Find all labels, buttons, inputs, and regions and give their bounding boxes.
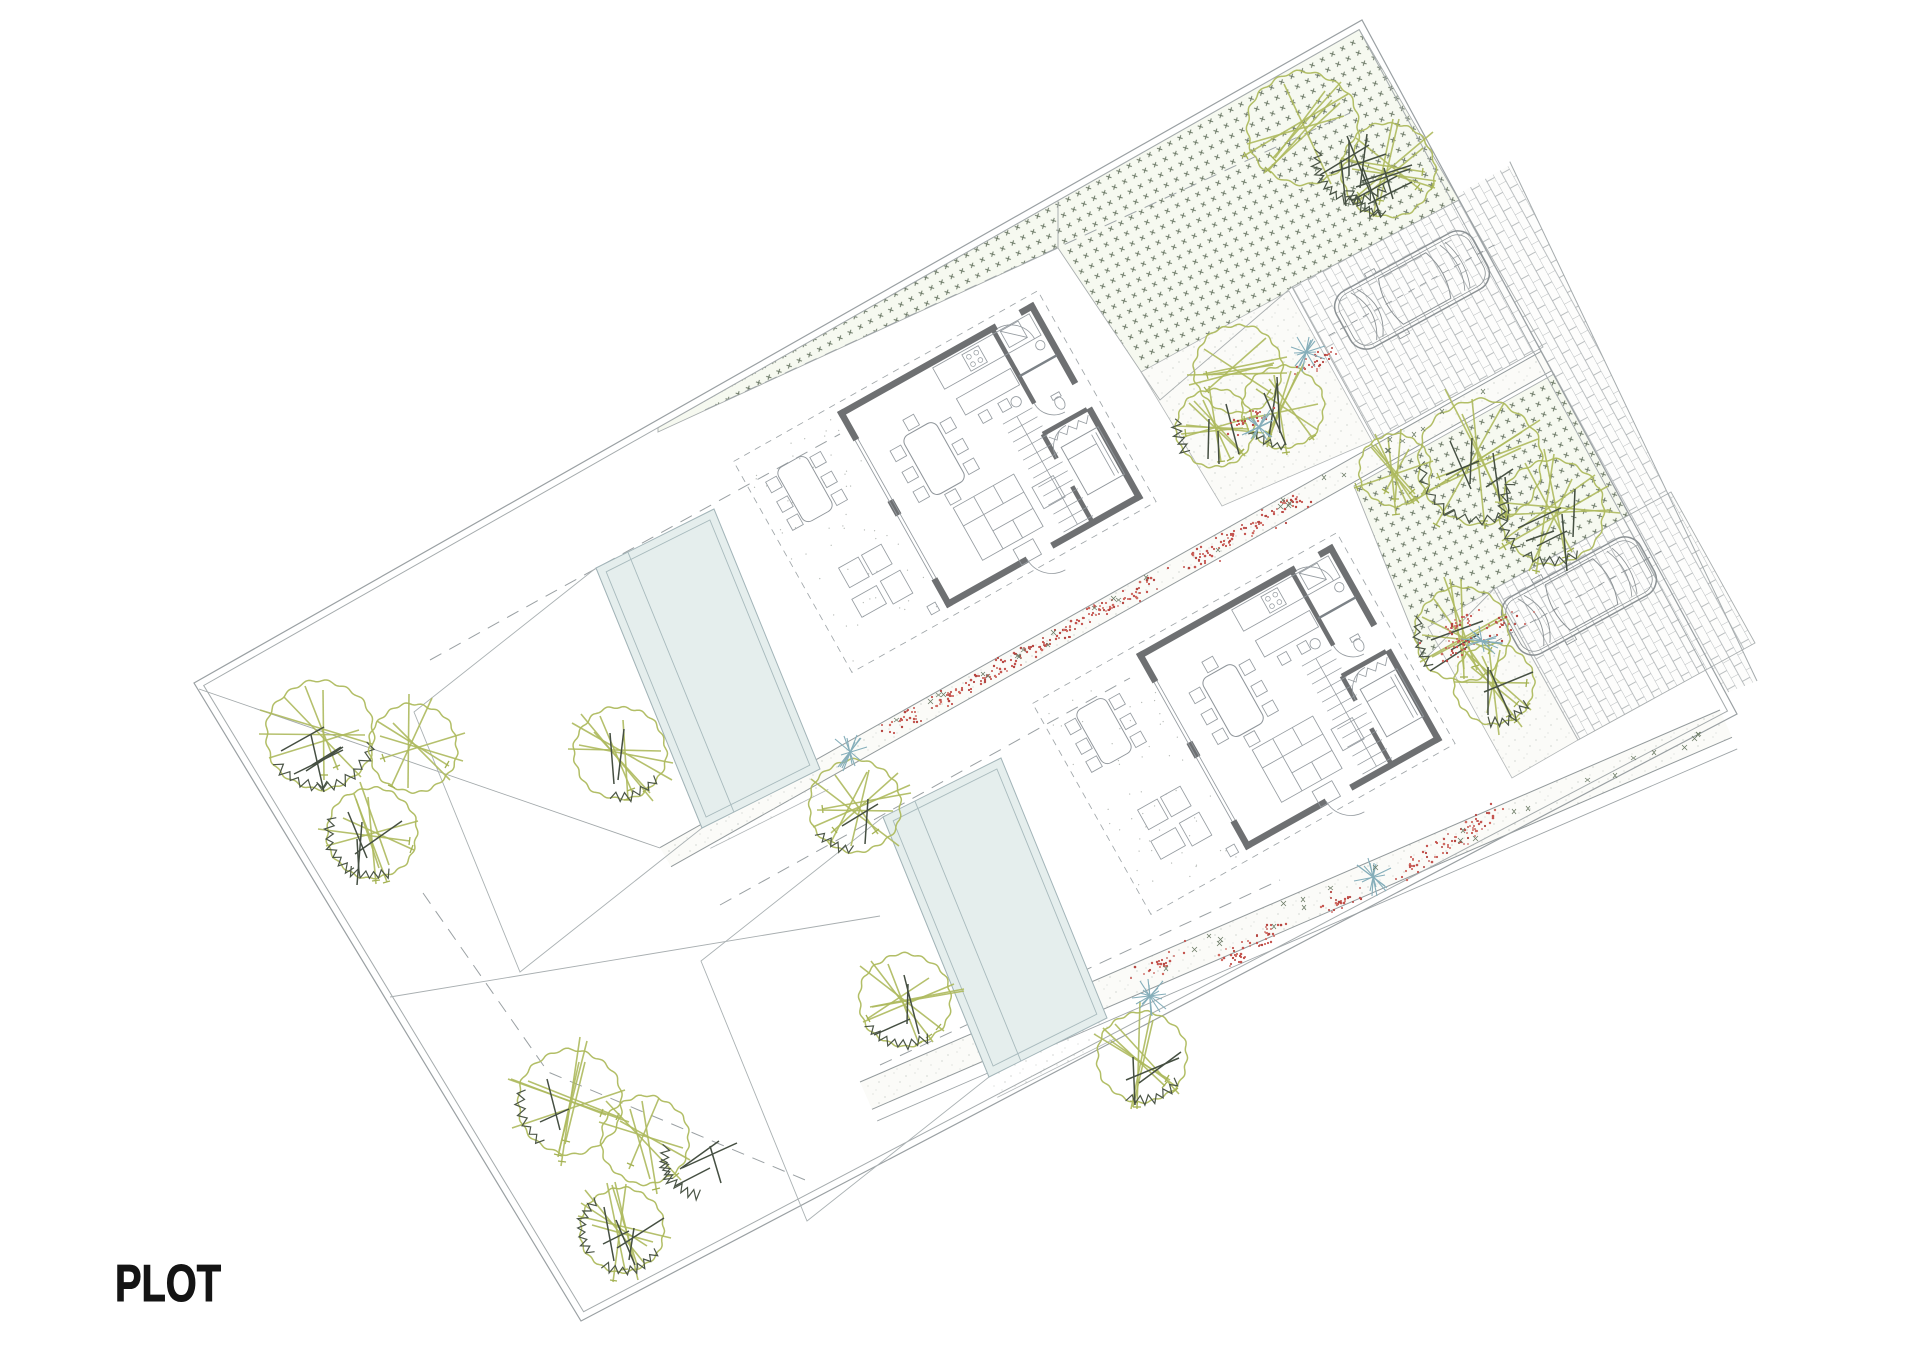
svg-text:PLOT: PLOT [115,1255,221,1313]
